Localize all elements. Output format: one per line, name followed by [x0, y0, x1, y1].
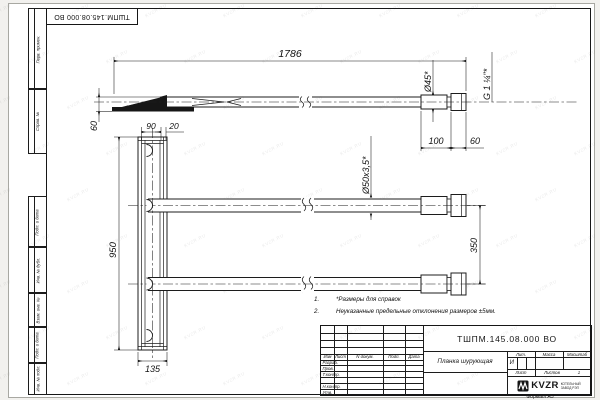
tb-col-data: Дата	[405, 354, 423, 360]
titleblock-line	[321, 333, 423, 334]
titleblock-line	[321, 347, 423, 348]
note-text: *Размеры для справок	[336, 296, 401, 303]
tb-col-podp: Подп.	[383, 354, 405, 360]
note-2: 2. Неуказанные предельные отклонения раз…	[314, 308, 496, 315]
title-block: Изм Лист N докум. Подп. Дата Разраб. Про…	[320, 325, 592, 396]
notes: 1. *Размеры для справок 2. Неуказанные п…	[314, 296, 496, 320]
dim-label-tube-spec: Ø50х3,5*	[361, 156, 371, 195]
note-text: Неуказанные предельные отклонения размер…	[336, 308, 496, 315]
tb-massa-header: Масса	[535, 351, 563, 357]
titleblock-line	[423, 372, 507, 373]
tb-row-utv: Утв.	[321, 389, 349, 395]
rod-lower	[128, 273, 486, 295]
titleblock-line	[507, 357, 591, 358]
titleblock-line	[517, 357, 518, 369]
dim-label-350: 350	[469, 238, 479, 253]
dim-label-20: 20	[168, 121, 179, 131]
tb-logo-subtitle: КОТЕЛЬНЫЙ ЗАВОД РЭП	[561, 382, 581, 390]
tb-logo-name: KVZR	[531, 380, 558, 391]
titleblock-line	[321, 340, 423, 341]
tb-lit-value: И	[507, 357, 517, 369]
titleblock-line	[405, 326, 406, 395]
titleblock-line	[383, 326, 384, 395]
dim-label-60-right: 60	[470, 136, 480, 146]
dim-label-thread: G 1 ¼"*	[482, 68, 492, 100]
dim-label-950: 950	[108, 241, 119, 258]
titleblock-line	[321, 377, 423, 378]
plan-view	[94, 94, 578, 112]
tb-listov-value: 1	[571, 369, 587, 376]
note-1: 1. *Размеры для справок	[314, 296, 496, 303]
tb-doc-number: ТШПМ.145.08.000 ВО	[423, 326, 591, 351]
drawing-sheet: { "page": { "watermark": "KVZR.RU", "sta…	[0, 0, 600, 400]
tb-list-label: Лист	[507, 369, 535, 376]
dim-label-90: 90	[146, 121, 156, 131]
format-label: Формат А3	[495, 394, 585, 400]
gusset-plate	[112, 107, 194, 112]
tb-row-tkontr: Т.контр.	[321, 371, 349, 377]
titleblock-line	[526, 357, 527, 369]
tb-logo: KVZR КОТЕЛЬНЫЙ ЗАВОД РЭП	[508, 376, 590, 395]
dim-label-135: 135	[145, 364, 161, 374]
tb-logo-line1: КОТЕЛЬНЫЙ	[561, 382, 581, 386]
dim-label-100: 100	[428, 136, 443, 146]
tb-masshtab-header: Масштаб	[563, 351, 591, 357]
note-number: 2.	[314, 308, 336, 315]
tb-part-name: Планка шурующая	[423, 351, 507, 372]
dim-label-dia45: Ø45*	[423, 71, 433, 93]
dim-label-1786: 1786	[278, 48, 302, 60]
tb-logo-line2: ЗАВОД РЭП	[561, 386, 581, 390]
tb-col-ndoc: N докум.	[347, 354, 383, 360]
front-view	[128, 128, 486, 358]
rod-upper	[128, 195, 486, 217]
dim-label-60-left: 60	[89, 121, 99, 131]
tb-listov-label: Листов	[537, 369, 567, 376]
note-number: 1.	[314, 296, 336, 303]
spring-icon	[517, 380, 529, 392]
